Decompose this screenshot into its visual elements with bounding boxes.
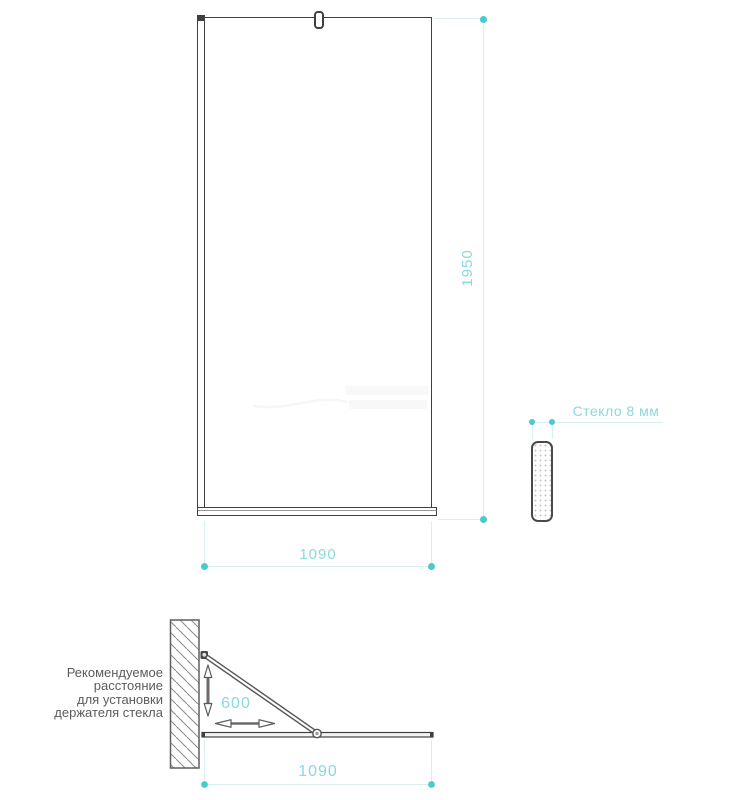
wall-hatched	[171, 620, 200, 768]
bottom-profile-inner-line	[198, 510, 436, 511]
horizontal-arrow-head-left	[216, 720, 232, 728]
bottom-profile-bar	[197, 507, 437, 516]
holder-distance-label: 600	[210, 695, 262, 713]
height-dim-dot-top	[480, 16, 487, 23]
width-dim-line	[205, 566, 432, 567]
height-dim-dot-bottom	[480, 516, 487, 523]
note-line-3: для установки	[20, 693, 163, 706]
vertical-arrow-head-up	[204, 665, 212, 678]
glass-thickness-label: Стекло 8 мм	[560, 403, 672, 419]
glass-holder-pin	[315, 732, 318, 735]
width-dim-label: 1090	[268, 546, 368, 563]
width-dim-extension-left	[204, 521, 205, 565]
glass-thickness-dot-left	[529, 419, 535, 425]
note-line-2: расстояние	[20, 679, 163, 692]
glass-panel-outline	[201, 17, 432, 508]
wall-mount-profile	[197, 15, 206, 508]
height-dim-line	[483, 19, 484, 519]
height-dim-extension-top	[435, 18, 482, 19]
watermark	[245, 380, 435, 416]
width-dim-extension-right	[431, 521, 432, 565]
glass-end-cap-right	[430, 733, 433, 738]
note-line-4: держателя стекла	[20, 706, 163, 719]
glass-thickness-tick-right	[552, 424, 553, 439]
glass-thickness-dot-right	[549, 419, 555, 425]
height-dim-extension-bottom	[438, 519, 483, 520]
bottom-dim-dot-left	[201, 781, 208, 788]
wall-profile-top-cap	[197, 15, 206, 21]
note-line-1: Рекомендуемое	[20, 666, 163, 679]
glass-thickness-tick-left	[532, 424, 533, 439]
glass-end-cap-left	[202, 733, 205, 738]
bottom-width-dim-label: 1090	[268, 763, 368, 781]
top-glass-clamp	[314, 11, 324, 29]
bottom-dim-dot-right	[428, 781, 435, 788]
holder-recommendation-note: Рекомендуемое расстояние для установки д…	[20, 666, 163, 720]
glass-cross-section	[531, 441, 553, 522]
width-dim-dot-right	[428, 563, 435, 570]
wall-bracket-screw	[202, 653, 206, 657]
technical-drawing-canvas: 1950 1090 Стекло 8 мм	[0, 0, 732, 800]
height-dim-label: 1950	[459, 228, 477, 308]
horizontal-arrow-head-right	[259, 720, 275, 728]
width-dim-dot-left	[201, 563, 208, 570]
